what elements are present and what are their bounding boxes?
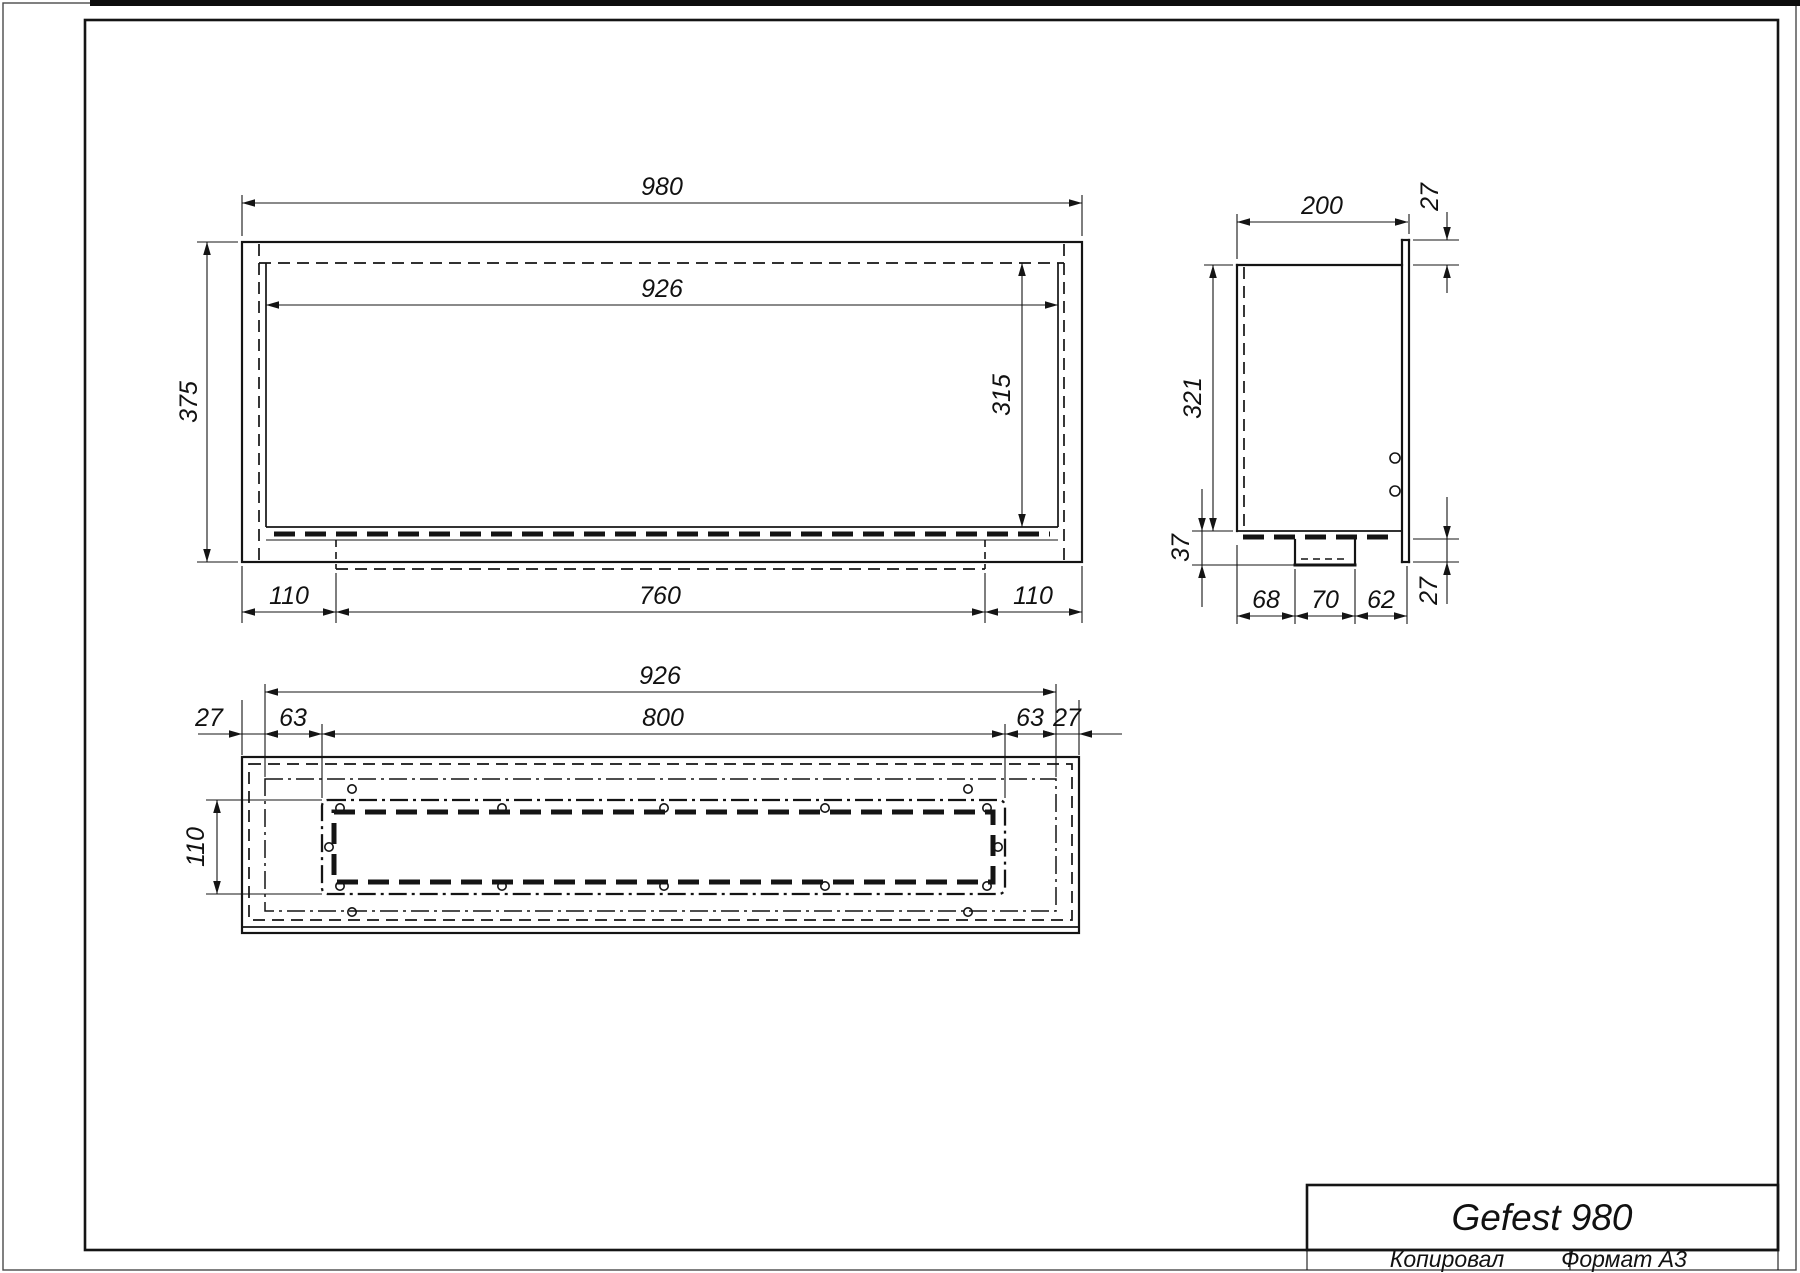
front-view: 980 926 375 315 110 760 [175,173,1082,623]
dim-side-flange-bottom: 27 [1413,497,1459,606]
burner-slot [322,800,1005,894]
dim-front-tray-width-text: 760 [639,582,681,610]
dim-side-bottom-chain: 68 70 62 [1237,545,1407,624]
drawing-sheet: 980 926 375 315 110 760 [0,0,1800,1273]
footer-copied-label: Копировал [1390,1246,1504,1272]
dim-front-opening-width: 926 [266,275,1058,305]
title-block: Gefest 980 [1307,1185,1778,1250]
dim-bottom-edge-left-text: 27 [194,704,224,732]
dim-side-flange-top: 27 [1413,182,1459,293]
bottom-view: 926 27 63 800 63 27 11 [182,662,1122,933]
dim-front-opening-height: 315 [988,263,1022,527]
drawing-frame [85,20,1778,1250]
side-tray [1295,540,1355,565]
dim-front-bottom-chain: 110 760 110 [242,566,1082,623]
dim-front-height-text: 375 [175,381,203,423]
dim-front-opening-width-text: 926 [641,275,683,303]
dim-side-flange-bottom-text: 27 [1415,576,1443,606]
dim-bottom-chain: 27 63 800 63 27 [194,700,1122,798]
dim-front-right-offset-text: 110 [1013,582,1053,610]
dim-side-depth-text: 200 [1300,192,1343,220]
dim-bottom-offset-left-text: 63 [279,704,307,732]
dim-front-width-text: 980 [641,173,683,201]
dim-bottom-offset-right-text: 63 [1016,704,1044,732]
dim-bottom-slot-height-text: 110 [182,827,210,867]
dim-bottom-edge-right-text: 27 [1052,704,1082,732]
page-border [3,0,1800,1270]
side-view: 200 27 321 37 [1167,182,1459,624]
dim-bottom-slot-width-text: 800 [642,704,684,732]
flange-hole-lower [1390,486,1400,496]
dim-front-width: 980 [242,173,1082,236]
dim-side-tray-depth-text: 37 [1167,533,1195,562]
dim-side-seg-b-text: 70 [1311,586,1339,614]
top-edge-bar [90,0,1800,6]
dim-side-flange-top-text: 27 [1416,182,1444,212]
dim-side-seg-c-text: 62 [1367,586,1395,614]
dim-side-depth: 200 [1237,192,1409,259]
dim-bottom-slot-height: 110 [182,800,322,894]
dim-front-height: 375 [175,242,238,562]
dim-side-inner-height: 321 [1179,265,1233,531]
flange-hole-upper [1390,453,1400,463]
footer-format-label: Формат А3 [1561,1246,1687,1272]
drawing-canvas: 980 926 375 315 110 760 [0,0,1800,1273]
dim-front-opening-height-text: 315 [988,374,1016,416]
dim-side-inner-height-text: 321 [1179,377,1207,419]
dim-front-left-offset-text: 110 [269,582,309,610]
title-block-part-name: Gefest 980 [1451,1197,1632,1238]
dim-side-seg-a-text: 68 [1252,586,1280,614]
dim-bottom-frame-width-text: 926 [639,662,681,690]
